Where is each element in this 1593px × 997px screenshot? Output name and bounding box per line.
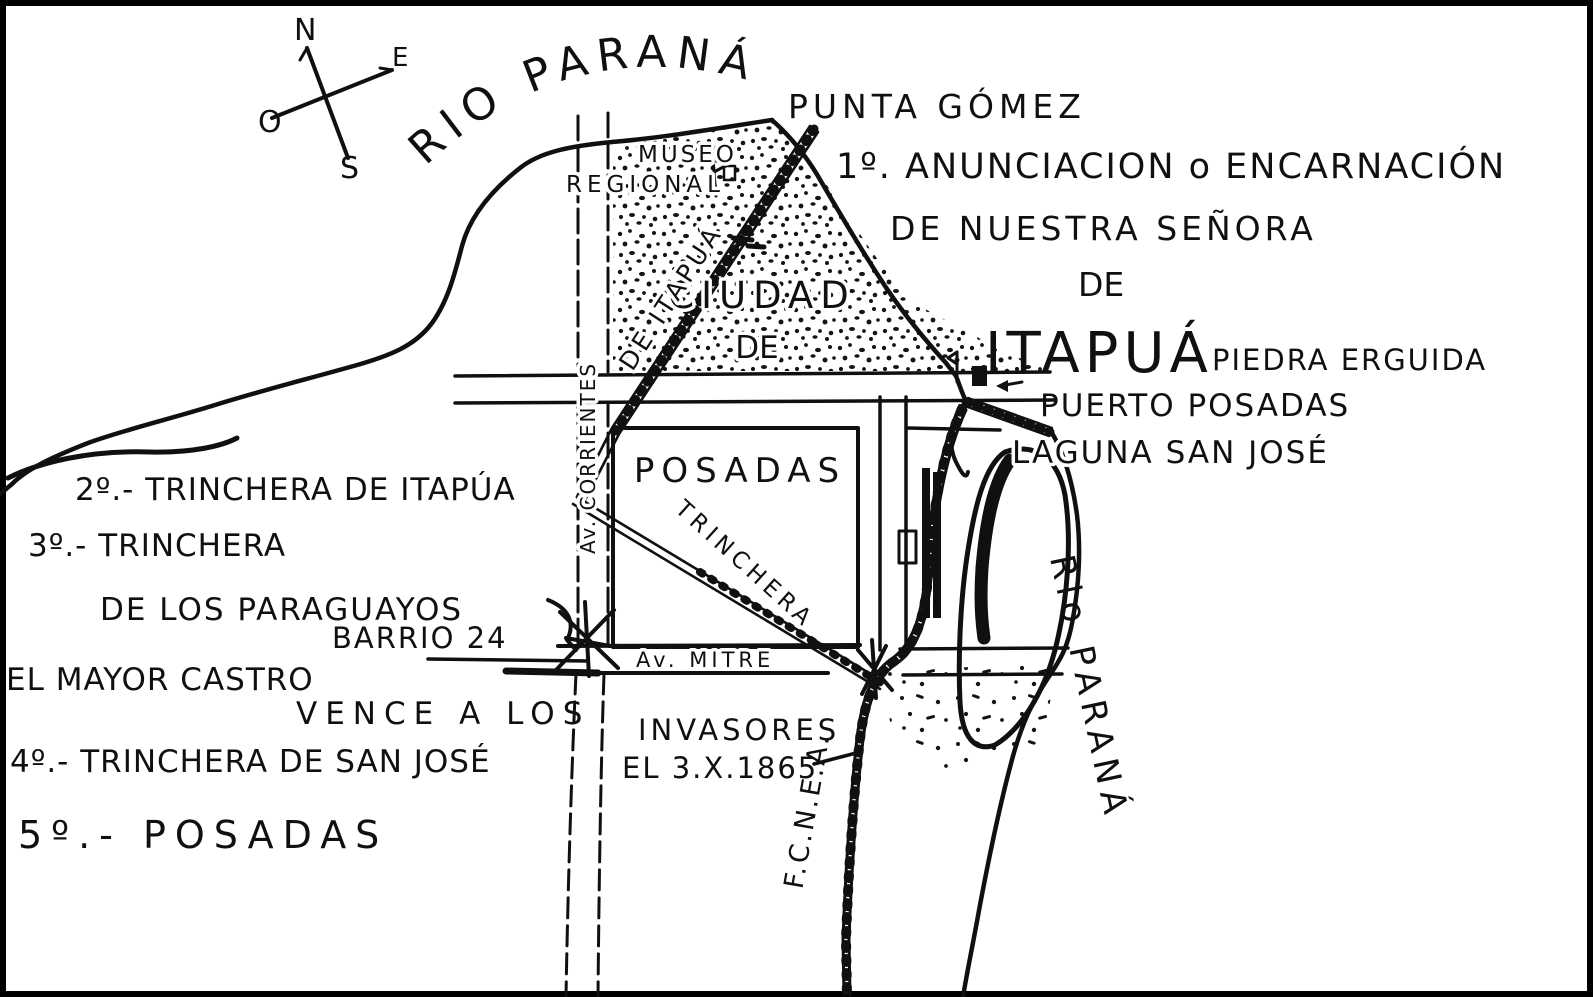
av-corrientes-label: Av. CORRIENTES <box>576 362 600 554</box>
museo-label-line1: MUSEO <box>638 142 737 168</box>
compass-label-s: S <box>340 151 359 186</box>
compass-label-o: O <box>258 105 282 140</box>
encarnacion-line3: DE <box>1078 265 1124 304</box>
map-image: N E O S RIO PARANÁ Rio PARANÁ PUNTA GÓME… <box>0 0 1593 997</box>
barrio-underlines <box>428 659 598 673</box>
av-mitre-label: Av. MITRE <box>636 648 774 672</box>
compass-rose: N E O S <box>258 13 408 186</box>
encarnacion-line4: ITAPUÁ <box>985 321 1213 386</box>
piedra-erguida-label: PIEDRA ERGUIDA <box>1212 343 1487 377</box>
right-river-label: Rio PARANÁ <box>1041 551 1137 824</box>
castro-line3: INVASORES <box>638 713 840 747</box>
legend-item-5: 5º.- POSADAS <box>18 813 388 857</box>
legend-item-3-line1: 3º.- TRINCHERA <box>28 528 286 564</box>
castro-line2: VENCE A LOS <box>296 696 590 732</box>
puerto-posadas-label: PUERTO POSADAS <box>1040 388 1350 424</box>
legend-item-2: 2º.- TRINCHERA DE ITAPÚA <box>75 471 516 508</box>
legend-item-4: 4º.- TRINCHERA DE SAN JOSÉ <box>10 744 491 780</box>
barrio-label: BARRIO 24 <box>332 621 508 655</box>
ciudad-de-label: DE <box>735 330 778 366</box>
lagoon-thick-shore <box>981 460 1010 638</box>
encarnacion-line1: 1º. ANUNCIACION o ENCARNACIÓN <box>836 145 1506 187</box>
compass-label-e: E <box>392 43 408 73</box>
posadas-block-label: POSADAS <box>634 451 846 491</box>
terrain-dots-southeast <box>882 662 1058 772</box>
museo-label-line2: REGIONAL <box>566 172 725 198</box>
encarnacion-line2: DE NUESTRA SEÑORA <box>890 209 1317 248</box>
laguna-san-jose-label: LAGUNA SAN JOSÉ <box>1012 435 1329 471</box>
compass-label-n: N <box>294 13 316 48</box>
castro-line1: EL MAYOR CASTRO <box>6 662 314 698</box>
trinchera-street-label: TRINCHERA <box>669 495 819 634</box>
street-vertical-right <box>880 397 906 650</box>
punta-gomez-label: PUNTA GÓMEZ <box>788 86 1086 126</box>
castro-line4: EL 3.X.1865 <box>622 751 818 785</box>
